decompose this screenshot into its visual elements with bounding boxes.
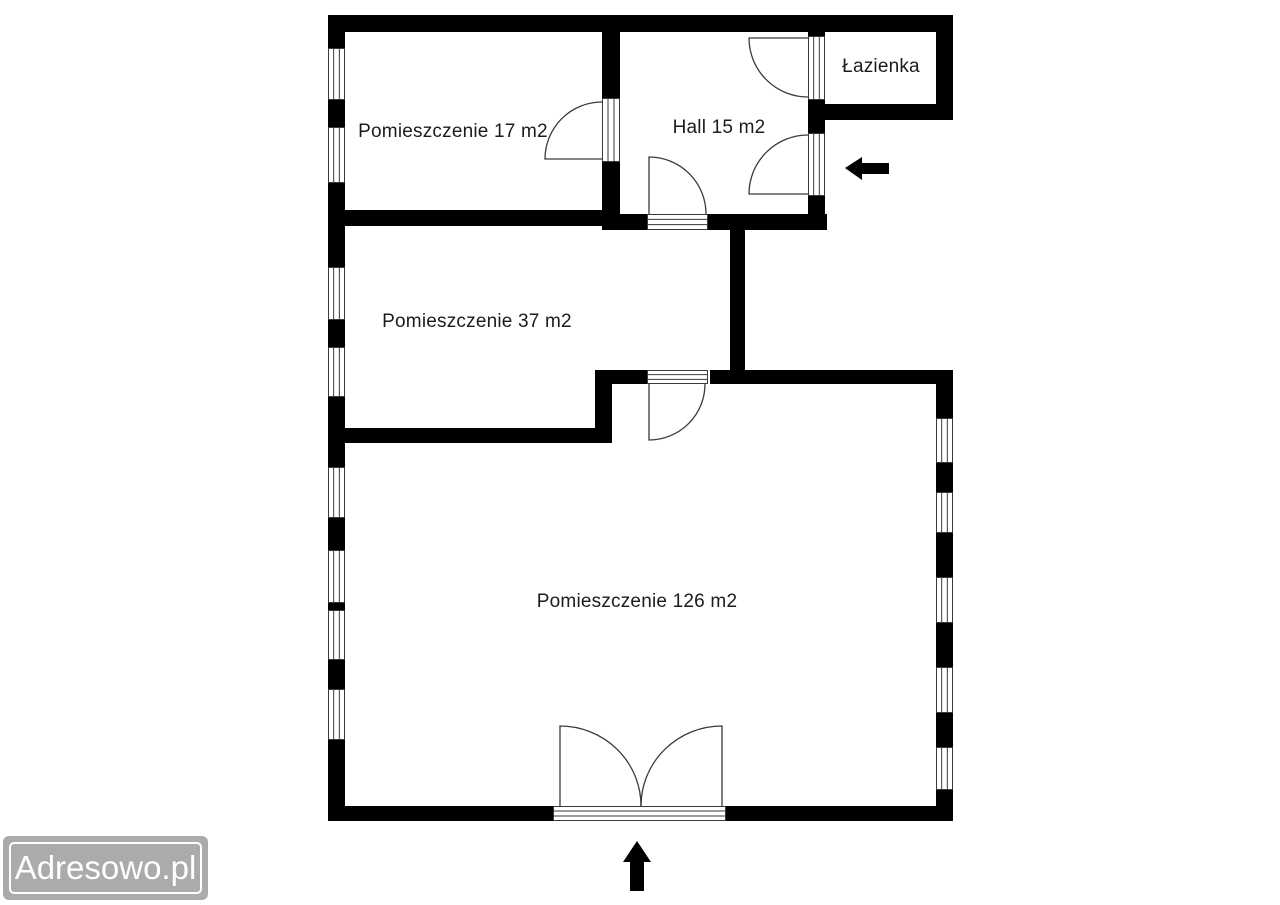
door-arc-double-left (560, 726, 641, 806)
window-left-8 (329, 690, 345, 740)
door-arc-hall-room37 (649, 157, 706, 214)
floorplan: Pomieszczenie 17 m2 Hall 15 m2 Łazienka … (0, 0, 1280, 905)
watermark-logo-text: Adresowo.pl (9, 842, 202, 894)
window-right-2 (937, 493, 953, 533)
door-bathroom-threshold (809, 37, 825, 100)
watermark-badge: Adresowo.pl (3, 836, 208, 900)
window-right-3 (937, 578, 953, 623)
wall-top (328, 15, 953, 32)
wall-room37-bottom (328, 428, 612, 443)
window-left-1 (329, 49, 345, 100)
door-arc-double-right (641, 726, 722, 806)
window-right-1 (937, 419, 953, 463)
door-arc-entrance-side (749, 135, 808, 194)
door-arc-room17-hall (545, 102, 602, 159)
window-left-3 (329, 268, 345, 320)
door-arc-bathroom (749, 38, 808, 97)
room-label-pomieszczenie-126: Pomieszczenie 126 m2 (537, 591, 737, 613)
door-double-entrance-threshold (554, 807, 726, 821)
floorplan-svg (0, 0, 1280, 905)
entrance-arrow-side (845, 157, 889, 180)
room-label-pomieszczenie-17: Pomieszczenie 17 m2 (358, 121, 548, 143)
wall-room126-top-right (710, 370, 953, 384)
door-entrance-side-threshold (809, 134, 825, 196)
room-label-lazienka: Łazienka (842, 56, 920, 78)
window-left-7 (329, 611, 345, 660)
window-left-6 (329, 551, 345, 603)
wall-bathroom-bottom (808, 104, 953, 120)
door-hall-room37-threshold (648, 215, 708, 230)
door-room17-hall-threshold (603, 99, 620, 162)
window-left-5 (329, 468, 345, 518)
window-left-4 (329, 348, 345, 397)
window-right-5 (937, 748, 953, 790)
door-room37-room126-threshold (648, 371, 708, 384)
door-arc-room37-room126 (649, 384, 705, 440)
window-left-2 (329, 128, 345, 183)
wall-room17-room37 (328, 210, 620, 226)
window-right-4 (937, 668, 953, 713)
room-label-pomieszczenie-37: Pomieszczenie 37 m2 (382, 311, 572, 333)
wall-hall-room37-right (730, 214, 745, 384)
entrance-arrow-bottom (623, 841, 651, 891)
room-label-hall: Hall 15 m2 (673, 117, 766, 139)
wall-hall-bottom (602, 214, 827, 230)
